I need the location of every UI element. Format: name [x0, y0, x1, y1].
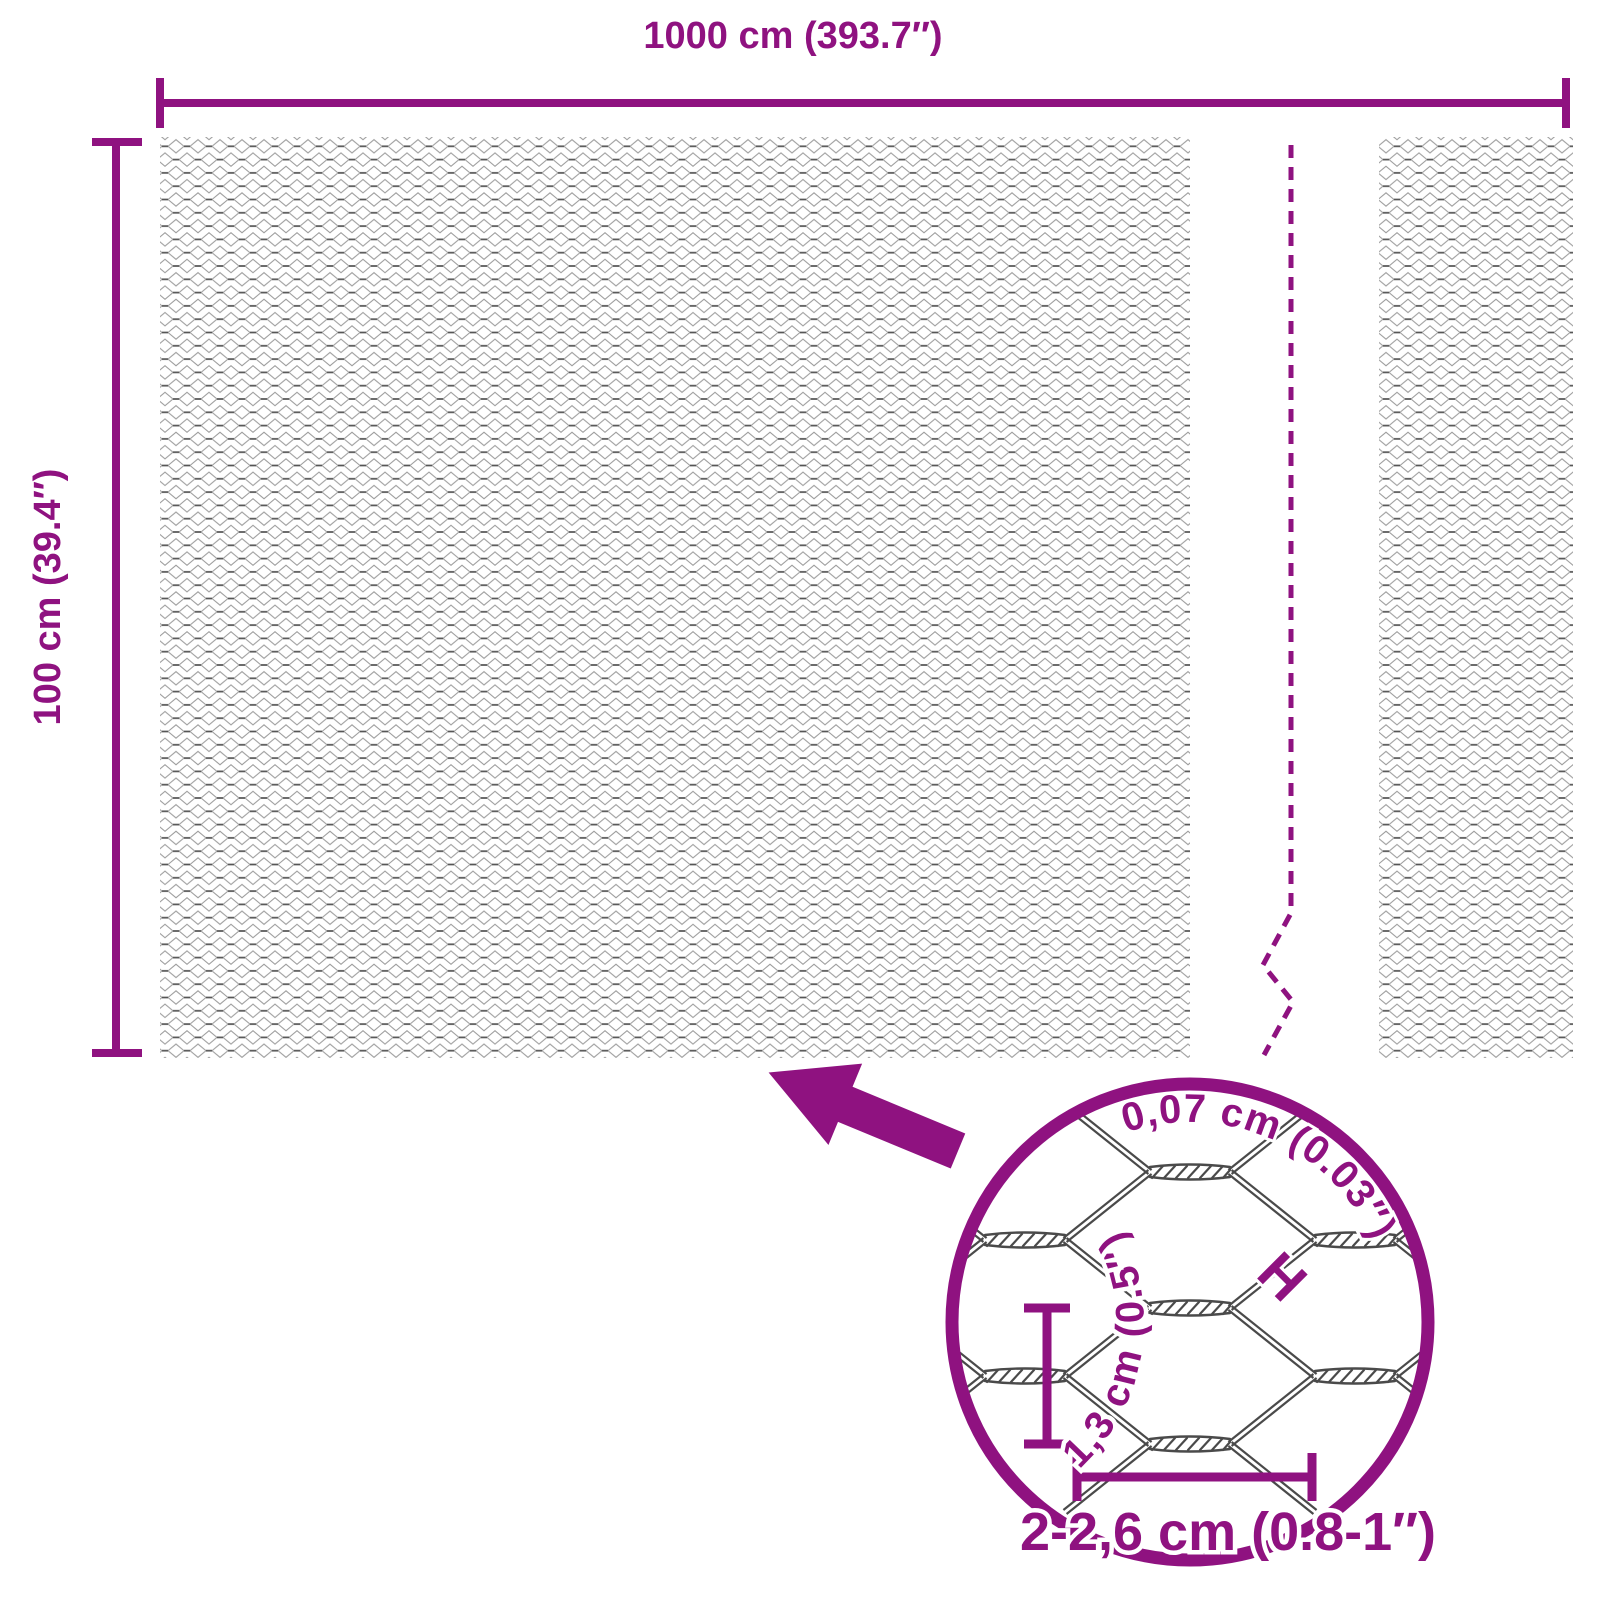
break-line [1263, 145, 1293, 1055]
height-dimension-label: 100 cm (39.4″) [27, 469, 69, 726]
product-dimension-diagram: 1000 cm (393.7″) 100 cm (39.4″) 0,07 cm … [0, 0, 1600, 1600]
mesh-panel-left [160, 137, 1190, 1058]
mesh-width-label: 2-2,6 cm (0.8-1″) [1020, 1502, 1436, 1562]
left-dimension-line [92, 142, 142, 1053]
cell-width-measure-beam [1077, 1453, 1312, 1501]
wire-thickness-marker: H [1246, 1240, 1319, 1313]
magnifier-circle [952, 1084, 1428, 1560]
width-dimension-label: 1000 cm (393.7″) [643, 15, 942, 57]
mesh-panels [160, 137, 1573, 1058]
diagram-canvas: 1000 cm (393.7″) 100 cm (39.4″) 0,07 cm … [0, 0, 1600, 1600]
mesh-panel-right [1379, 137, 1573, 1058]
top-dimension-line [160, 78, 1566, 128]
